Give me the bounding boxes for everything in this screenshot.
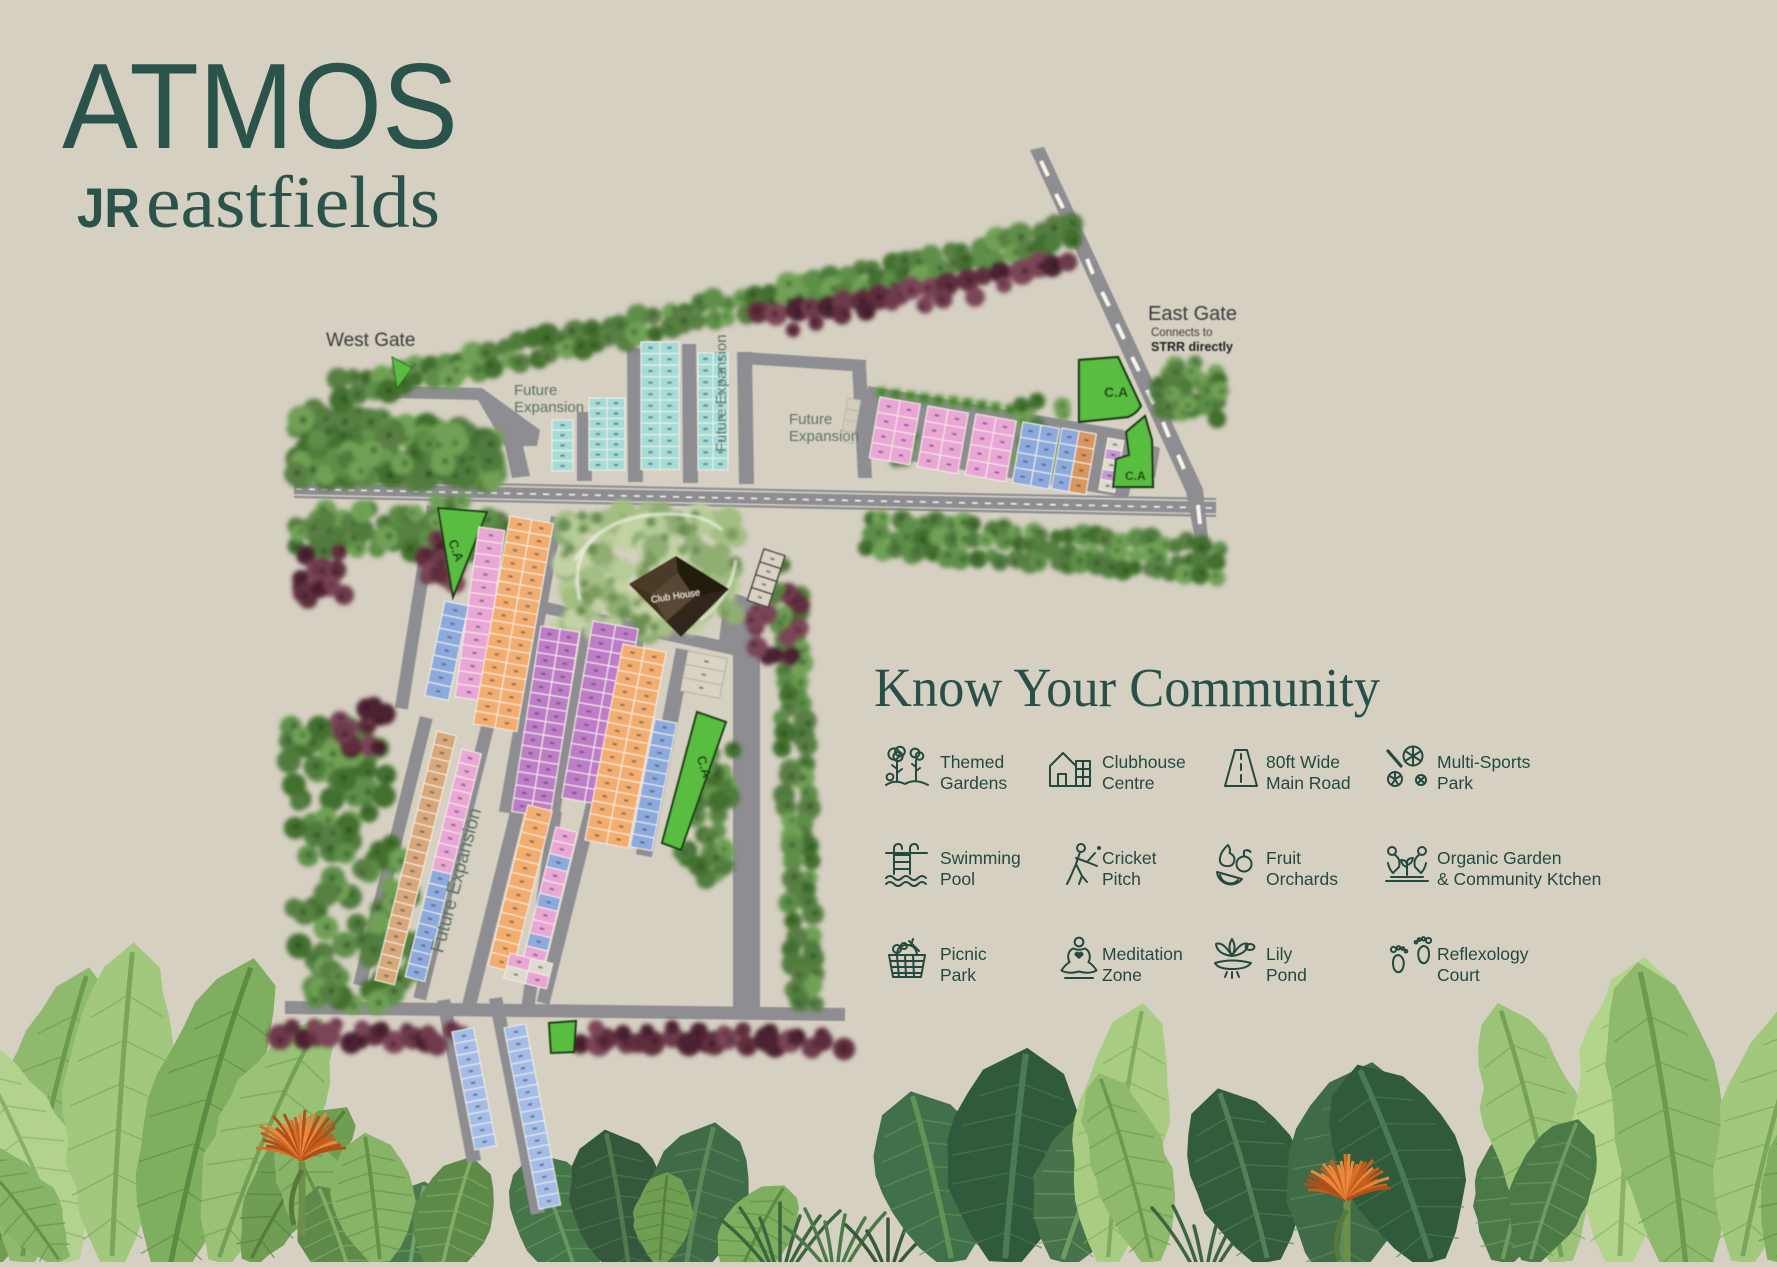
svg-text:Clubhouse: Clubhouse [1102,752,1186,772]
svg-text:Multi-Sports: Multi-Sports [1437,752,1531,772]
svg-text:Court: Court [1437,965,1480,985]
svg-text:Park: Park [940,965,976,985]
svg-text:Organic Garden: Organic Garden [1437,848,1562,868]
svg-text:Park: Park [1437,773,1473,793]
svg-text:Reflexology: Reflexology [1437,944,1529,964]
svg-text:East Gate: East Gate [1148,303,1237,325]
svg-text:Know Your Community: Know Your Community [874,657,1380,718]
svg-text:Swimming: Swimming [940,848,1021,868]
svg-text:Meditation: Meditation [1102,944,1183,964]
svg-text:West Gate: West Gate [326,330,415,351]
svg-text:& Community Ktchen: & Community Ktchen [1437,869,1601,889]
svg-text:Fruit: Fruit [1266,848,1301,868]
svg-text:Future Expansion: Future Expansion [713,334,730,452]
svg-text:Pond: Pond [1266,965,1307,985]
svg-text:ATMOS: ATMOS [62,38,458,174]
svg-text:Orchards: Orchards [1266,869,1338,889]
svg-text:Connects to: Connects to [1151,327,1212,339]
svg-text:Expansion: Expansion [514,399,584,416]
svg-text:Lily: Lily [1266,944,1293,964]
svg-text:Centre: Centre [1102,773,1155,793]
svg-text:eastfields: eastfields [146,162,440,244]
svg-text:Zone: Zone [1102,965,1142,985]
svg-text:C.A: C.A [1125,469,1146,483]
svg-text:Pool: Pool [940,869,975,889]
svg-text:Cricket: Cricket [1102,848,1157,868]
svg-text:Themed: Themed [940,752,1004,772]
svg-text:JR: JR [77,176,140,239]
svg-text:Expansion: Expansion [789,428,859,445]
svg-text:C.A: C.A [1104,384,1128,400]
svg-text:Main Road: Main Road [1266,773,1351,793]
svg-text:STRR directly: STRR directly [1151,340,1233,354]
svg-text:Future: Future [789,411,832,428]
svg-text:Future: Future [514,382,557,399]
svg-text:Pitch: Pitch [1102,869,1141,889]
svg-text:80ft Wide: 80ft Wide [1266,752,1340,772]
svg-text:Picnic: Picnic [940,944,987,964]
svg-text:Gardens: Gardens [940,773,1007,793]
